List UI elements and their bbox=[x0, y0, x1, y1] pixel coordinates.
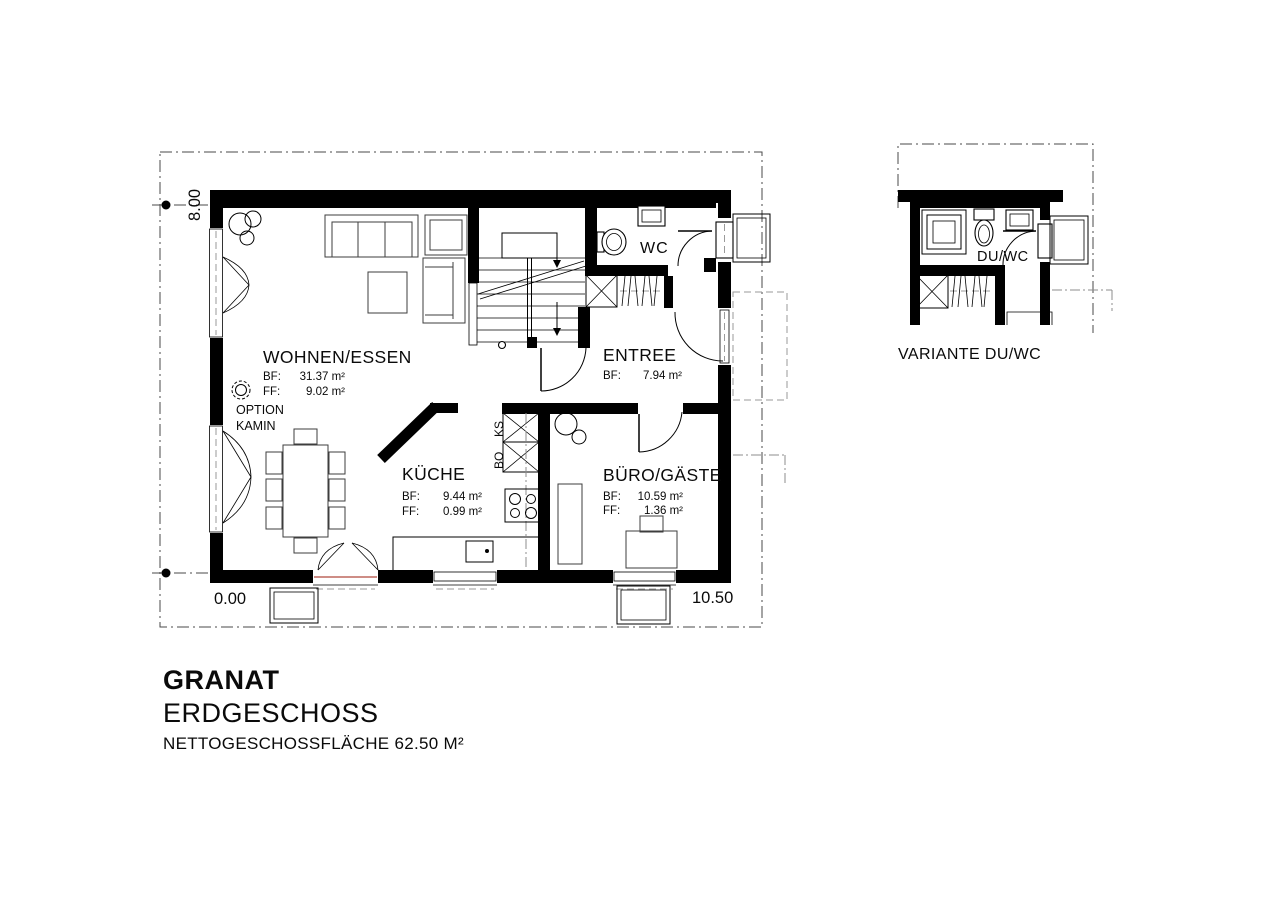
armchair-icon bbox=[423, 258, 465, 323]
site-boundary bbox=[152, 152, 762, 627]
ff-label: FF: bbox=[402, 506, 419, 518]
entry-steps-icon bbox=[270, 588, 318, 623]
bf-label: BF: bbox=[603, 491, 621, 503]
closet-icon bbox=[558, 484, 582, 564]
ff-value: 9.02 m² bbox=[306, 386, 345, 398]
area-note: NETTOGESCHOSSFLÄCHE 62.50 M² bbox=[163, 734, 464, 753]
office-furniture bbox=[555, 412, 682, 568]
bf-value: 31.37 m² bbox=[300, 371, 346, 383]
floor-title: ERDGESCHOSS bbox=[163, 698, 379, 728]
room-label-kitchen: KÜCHE bbox=[402, 464, 465, 484]
entree-window-icon bbox=[675, 310, 729, 363]
project-title: GRANAT bbox=[163, 665, 279, 695]
ff-value: 0.99 m² bbox=[443, 506, 482, 518]
ff-label: FF: bbox=[263, 386, 280, 398]
dining-table-icon bbox=[266, 429, 345, 553]
toilet-icon bbox=[597, 229, 626, 255]
bf-label: BF: bbox=[603, 370, 621, 382]
appliance-label-bo: BO bbox=[492, 452, 506, 469]
wardrobe-icon bbox=[916, 275, 991, 308]
bf-value: 10.59 m² bbox=[638, 491, 684, 503]
entrance-door-icon bbox=[678, 214, 770, 266]
dimension-width: 10.50 bbox=[692, 589, 733, 607]
plant-icon bbox=[229, 211, 261, 245]
dimension-height: 8.00 bbox=[186, 189, 204, 221]
sofa-icon bbox=[325, 215, 418, 257]
staircase bbox=[477, 233, 586, 391]
floor-plan-drawing: WOHNEN/ESSEN BF: 31.37 m² FF: 9.02 m² OP… bbox=[0, 0, 1280, 906]
stair-direction-arrow-icon bbox=[553, 236, 561, 336]
room-label-living: WOHNEN/ESSEN bbox=[263, 347, 412, 367]
bf-label: BF: bbox=[263, 371, 281, 383]
appliance-label-ks: KS bbox=[492, 421, 506, 437]
tall-cabinet-icon bbox=[503, 413, 539, 472]
dimension-origin: 0.00 bbox=[214, 590, 246, 608]
armchair-icon bbox=[425, 215, 467, 255]
kitchen-window-icon bbox=[433, 572, 497, 589]
desk-icon bbox=[626, 531, 677, 568]
room-label-entree: ENTREE bbox=[603, 345, 676, 365]
option-kamin-line1: OPTION bbox=[236, 403, 284, 417]
casement-window-icon bbox=[223, 257, 249, 313]
bf-value: 7.94 m² bbox=[643, 370, 682, 382]
office-window-icon bbox=[613, 572, 676, 624]
stair-door-icon bbox=[541, 348, 586, 391]
washbasin-icon bbox=[1006, 210, 1033, 230]
plant-icon bbox=[555, 413, 586, 444]
shower-icon bbox=[922, 210, 966, 254]
variant-room-label: DU/WC bbox=[977, 249, 1029, 265]
variant-caption: VARIANTE DU/WC bbox=[898, 346, 1041, 363]
option-kamin-line2: KAMIN bbox=[236, 419, 276, 433]
toilet-icon bbox=[974, 209, 994, 246]
casement-window-icon bbox=[223, 431, 251, 523]
datum-marker-icon bbox=[162, 201, 171, 210]
stove-icon bbox=[505, 489, 542, 522]
bf-value: 9.44 m² bbox=[443, 491, 482, 503]
room-label-wc: WC bbox=[640, 240, 669, 257]
ff-label: FF: bbox=[603, 505, 620, 517]
variant-plan bbox=[898, 144, 1112, 333]
wardrobe-icon bbox=[586, 275, 661, 307]
ff-value: 1.36 m² bbox=[644, 505, 683, 517]
sink-icon bbox=[466, 541, 493, 562]
washbasin-icon bbox=[638, 206, 665, 226]
bf-label: BF: bbox=[402, 491, 420, 503]
room-label-office: BÜRO/GÄSTE bbox=[603, 465, 722, 485]
fireplace-option-icon bbox=[232, 381, 250, 399]
variant-reference-outline bbox=[733, 292, 787, 483]
coffee-table-icon bbox=[368, 272, 407, 313]
office-door-icon bbox=[639, 412, 682, 452]
datum-marker-icon bbox=[162, 569, 171, 578]
floor-plan-sheet: WOHNEN/ESSEN BF: 31.37 m² FF: 9.02 m² OP… bbox=[0, 0, 1280, 906]
chair-icon bbox=[640, 516, 663, 532]
